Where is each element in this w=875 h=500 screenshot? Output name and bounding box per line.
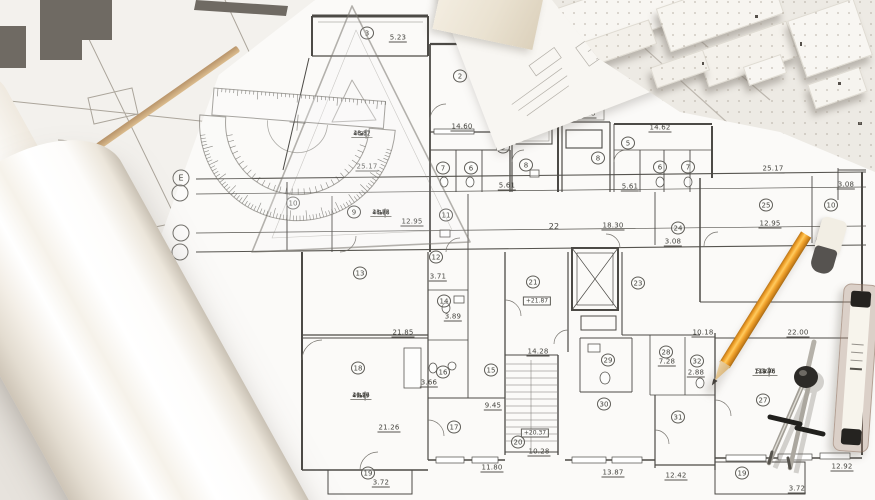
drafting-compass [0,0,875,500]
blueprint-photo: E324576885671091124251012131421231615181… [0,0,875,500]
